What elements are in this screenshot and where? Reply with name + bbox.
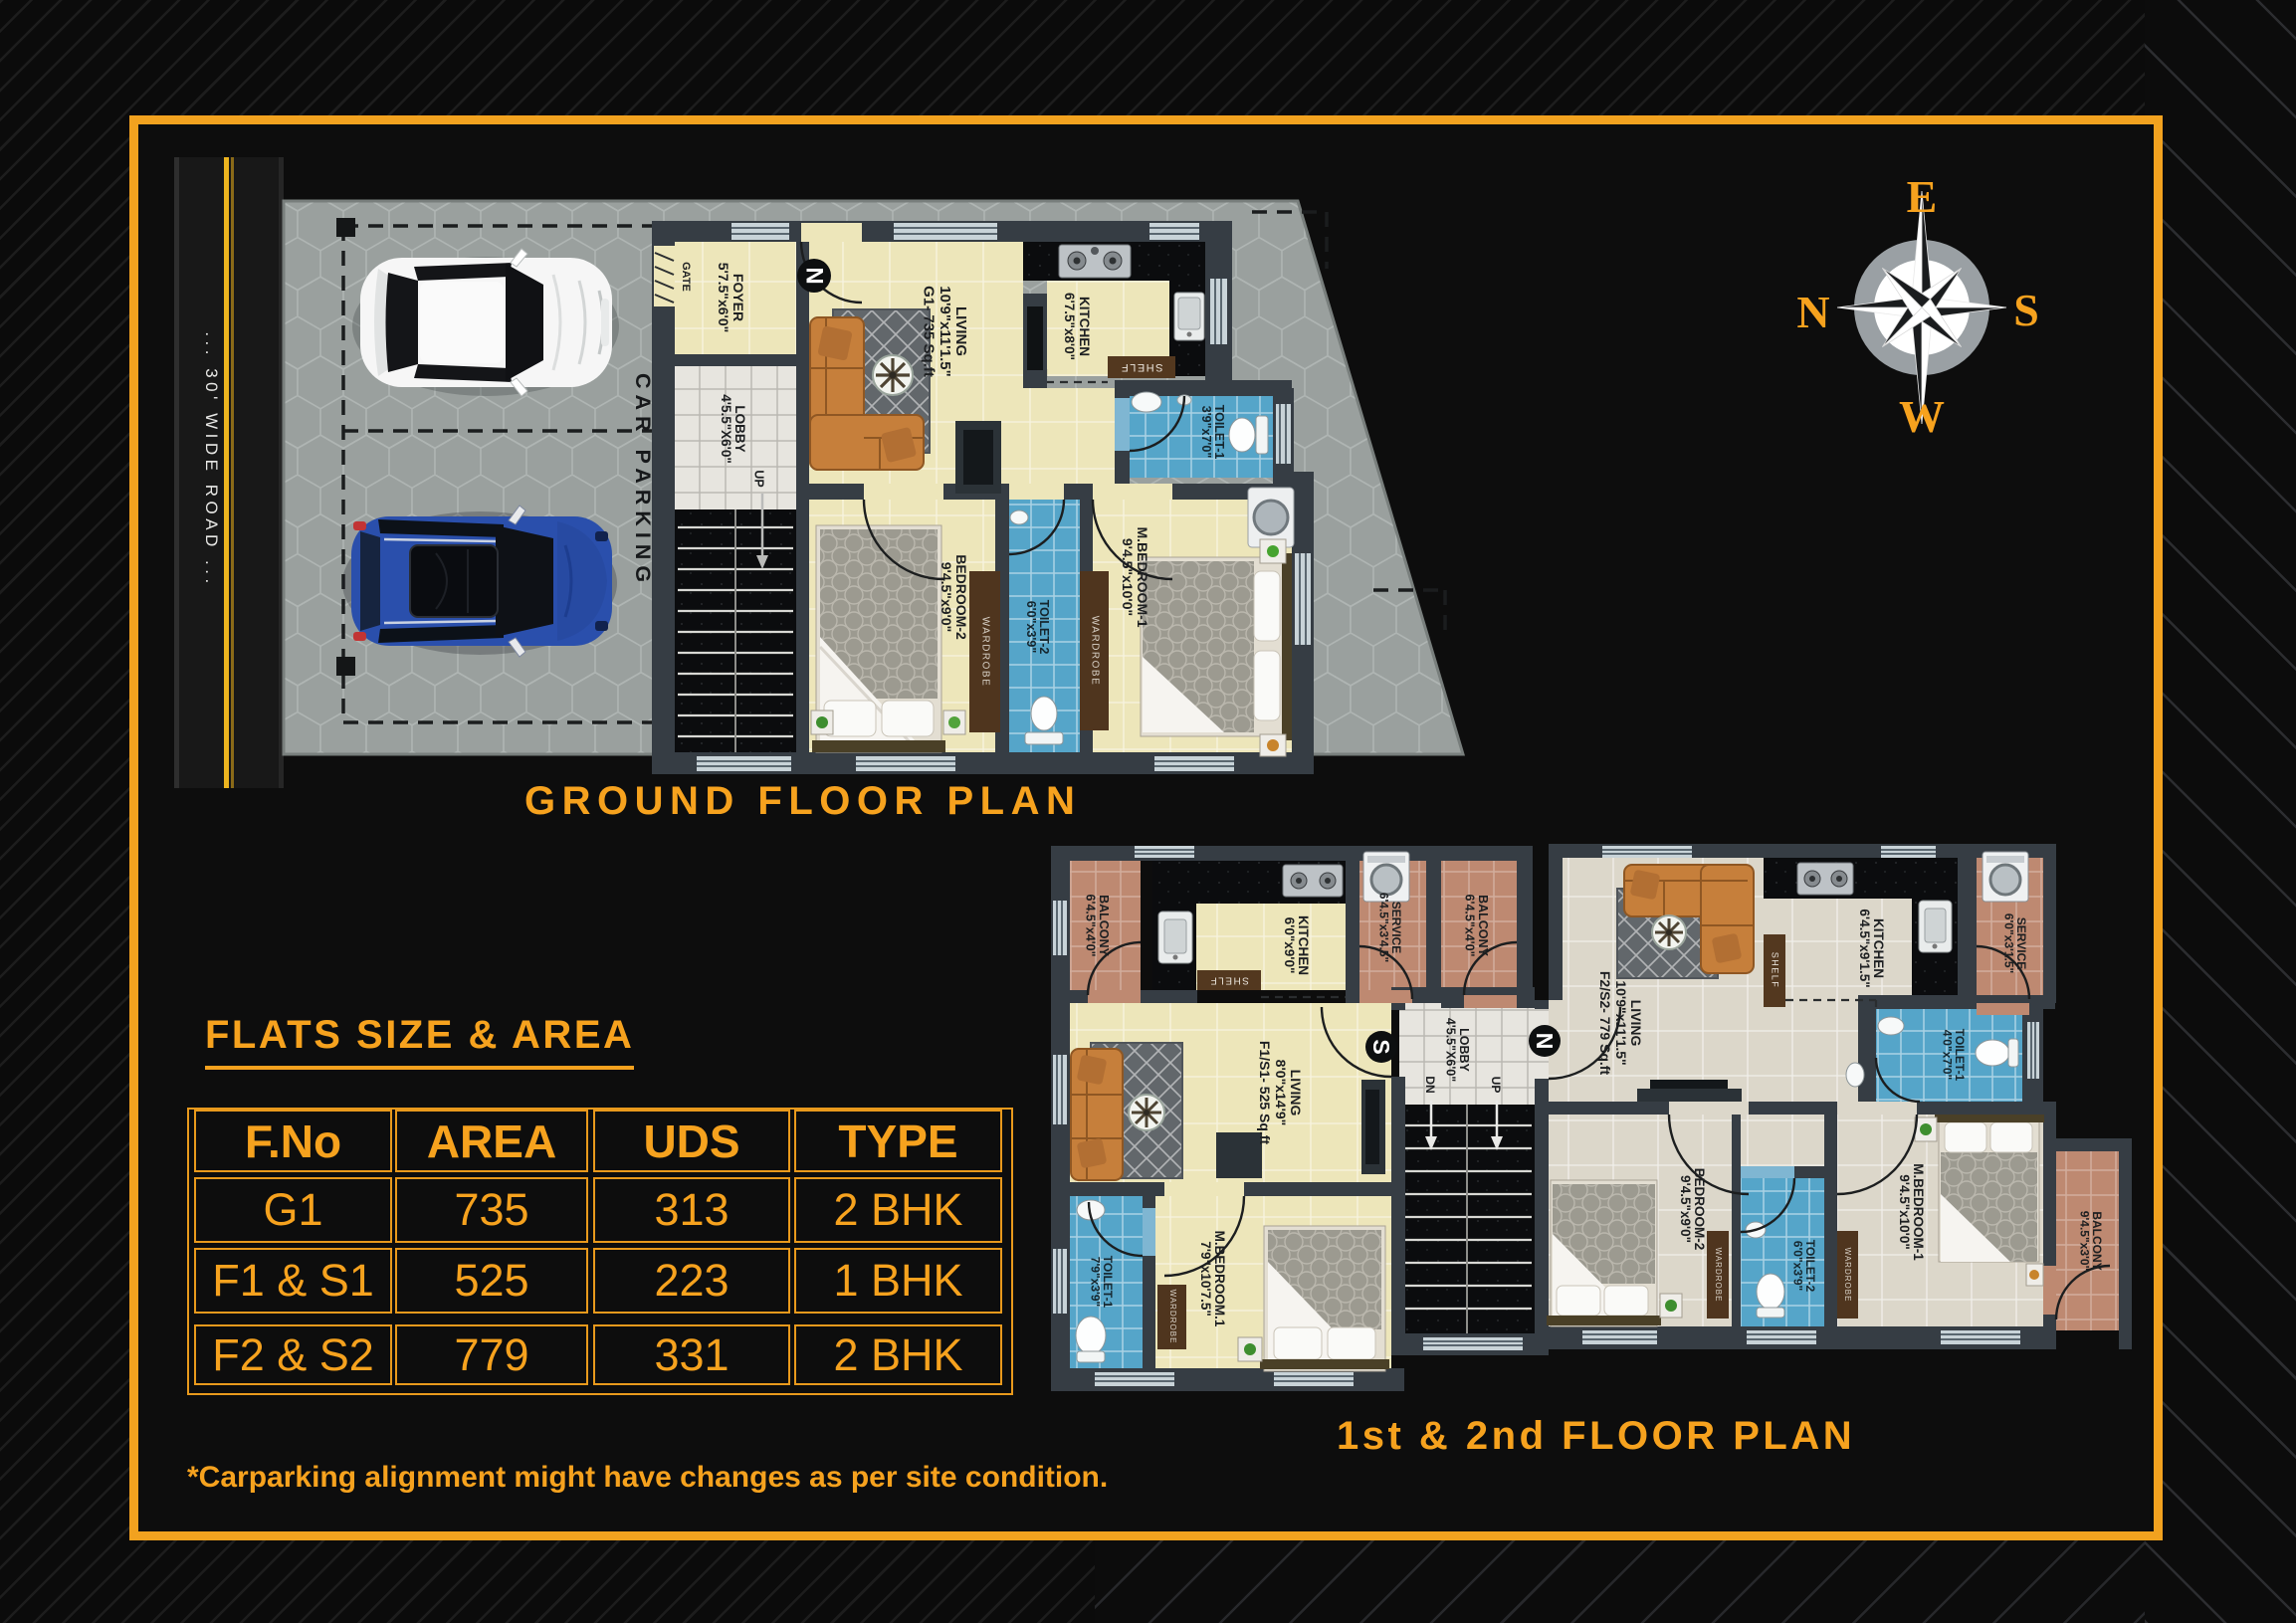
svg-text:E: E: [1907, 171, 1938, 222]
svg-text:M.BEDROOM.17'9"x10'7.5": M.BEDROOM.17'9"x10'7.5": [1198, 1231, 1227, 1327]
svg-text:KITCHEN6'4.5"x9'1.5": KITCHEN6'4.5"x9'1.5": [1857, 909, 1886, 987]
svg-text:UP: UP: [752, 470, 766, 487]
svg-text:GATE: GATE: [680, 262, 692, 292]
svg-text:TOILET-13'9"x7'0": TOILET-13'9"x7'0": [1199, 405, 1226, 460]
svg-text:CAR PARKING: CAR PARKING: [631, 373, 655, 588]
svg-text:WARDROBE: WARDROBE: [1714, 1248, 1723, 1303]
svg-text:WARDROBE: WARDROBE: [1089, 616, 1100, 687]
svg-text:UP: UP: [1489, 1077, 1503, 1094]
svg-text:SERVICE6'4.5"x3'4.5": SERVICE6'4.5"x3'4.5": [1377, 893, 1404, 962]
svg-text:BEDROOM-29'4.5"x9'0": BEDROOM-29'4.5"x9'0": [1678, 1168, 1707, 1251]
svg-text:WARDROBE: WARDROBE: [979, 617, 990, 688]
svg-text:DN: DN: [1423, 1076, 1437, 1093]
svg-text:TOILET-14'0"x7'0": TOILET-14'0"x7'0": [1941, 1029, 1968, 1082]
svg-text:TOILET-17'9"x3'9": TOILET-17'9"x3'9": [1089, 1256, 1116, 1309]
svg-text:... 30' WIDE ROAD ...: ... 30' WIDE ROAD ...: [202, 331, 221, 587]
svg-text:M.BEDROOM-19'4.5"x10'0": M.BEDROOM-19'4.5"x10'0": [1897, 1163, 1926, 1261]
svg-text:W: W: [1899, 391, 1945, 442]
svg-text:M.BEDROOM-19'4.5"x10'0": M.BEDROOM-19'4.5"x10'0": [1120, 526, 1150, 627]
svg-text:TOILET-26'0"x3'9": TOILET-26'0"x3'9": [1791, 1240, 1818, 1293]
svg-text:SHELF: SHELF: [1771, 952, 1780, 989]
svg-text:KITCHEN6'7.5"x8'0": KITCHEN6'7.5"x8'0": [1062, 293, 1092, 360]
svg-text:BALCONY6'4.5"x4'0": BALCONY6'4.5"x4'0": [1463, 895, 1491, 957]
svg-text:SHELF: SHELF: [1209, 974, 1249, 985]
svg-text:WARDROBE: WARDROBE: [1168, 1290, 1177, 1344]
svg-text:BALCONY9'4.5"x3'0": BALCONY9'4.5"x3'0": [2078, 1211, 2105, 1271]
svg-text:S: S: [2013, 285, 2039, 335]
svg-text:S: S: [1368, 1039, 1394, 1054]
svg-text:BEDROOM-29'4.5"x9'0": BEDROOM-29'4.5"x9'0": [939, 554, 969, 640]
svg-text:TOILET-26'0"x3'9": TOILET-26'0"x3'9": [1024, 600, 1051, 655]
svg-text:N: N: [1532, 1033, 1558, 1050]
svg-text:BALCONY6'4.5"x4'0": BALCONY6'4.5"x4'0": [1084, 895, 1112, 957]
svg-text:WARDROBE: WARDROBE: [1843, 1248, 1852, 1303]
svg-text:SHELF: SHELF: [1121, 361, 1163, 373]
svg-text:SERVICE6'0"x3'1.5": SERVICE6'0"x3'1.5": [2002, 913, 2029, 973]
svg-text:N: N: [801, 267, 828, 284]
svg-text:N: N: [1796, 287, 1829, 337]
svg-text:KITCHEN6'0"x9'0": KITCHEN6'0"x9'0": [1282, 915, 1311, 975]
